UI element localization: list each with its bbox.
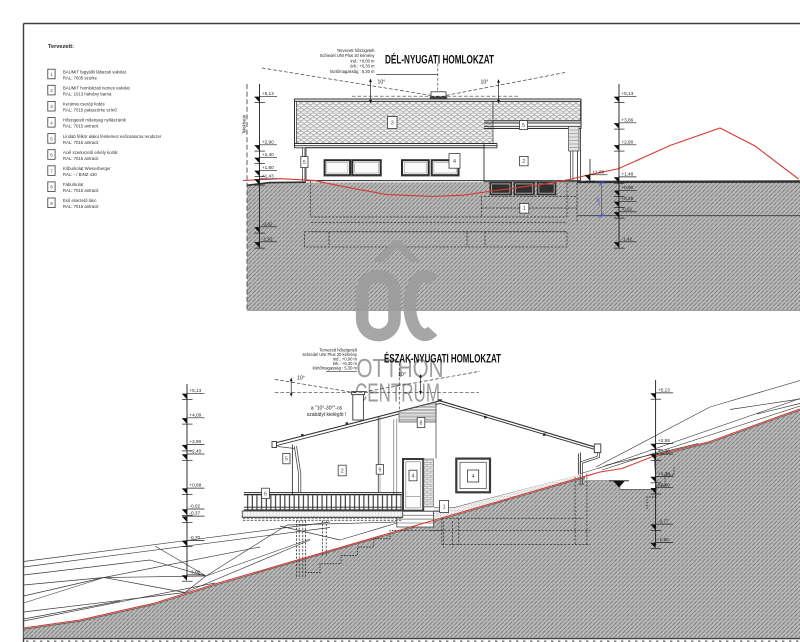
svg-text:4: 4 bbox=[453, 159, 456, 165]
svg-text:1: 1 bbox=[523, 206, 526, 212]
svg-text:RAL: 7015 palaszürke színű: RAL: 7015 palaszürke színű bbox=[63, 108, 117, 113]
svg-text:4: 4 bbox=[50, 120, 53, 126]
svg-text:+0,90: +0,90 bbox=[658, 482, 670, 487]
svg-text:2: 2 bbox=[522, 159, 525, 165]
svg-text:+1,80: +1,80 bbox=[262, 165, 274, 170]
svg-text:+1,48: +1,48 bbox=[621, 172, 633, 177]
svg-text:RAL: 1013 halvány barna: RAL: 1013 halvány barna bbox=[63, 92, 112, 97]
svg-text:Kerámia cserép fedés: Kerámia cserép fedés bbox=[63, 102, 105, 107]
svg-text:DÉL-NYUGATI HOMLOKZAT: DÉL-NYUGATI HOMLOKZAT bbox=[385, 54, 494, 67]
svg-text:9: 9 bbox=[50, 201, 53, 207]
svg-text:+0,28: +0,28 bbox=[621, 196, 633, 201]
svg-text:5: 5 bbox=[50, 136, 53, 142]
svg-text:6: 6 bbox=[50, 153, 53, 159]
svg-text:+2,90: +2,90 bbox=[189, 439, 201, 444]
svg-text:+3,86: +3,86 bbox=[621, 117, 633, 122]
svg-text:8: 8 bbox=[420, 420, 423, 426]
svg-text:+1,43: +1,43 bbox=[262, 173, 274, 178]
svg-text:+2,40: +2,40 bbox=[658, 449, 670, 454]
svg-text:+5,13: +5,13 bbox=[262, 91, 274, 96]
svg-text:9: 9 bbox=[378, 467, 381, 473]
svg-text:+2,59: +2,59 bbox=[658, 438, 670, 443]
svg-text:+0,90: +0,90 bbox=[621, 185, 633, 190]
svg-text:Acél szerkezetű erkély korlát: Acél szerkezetű erkély korlát bbox=[63, 150, 118, 155]
svg-text:3: 3 bbox=[391, 120, 394, 126]
svg-text:10°: 10° bbox=[297, 376, 305, 382]
svg-text:RAL: 7005 szürke: RAL: 7005 szürke bbox=[63, 75, 98, 80]
svg-text:-0,37: -0,37 bbox=[189, 511, 200, 516]
svg-text:10°: 10° bbox=[378, 79, 386, 85]
svg-text:RAL: 7015 antracit: RAL: 7015 antracit bbox=[63, 124, 99, 129]
svg-text:+2,90: +2,90 bbox=[262, 139, 274, 144]
svg-text:-1,42: -1,42 bbox=[621, 236, 632, 241]
svg-text:szabályt kielégíti !: szabályt kielégíti ! bbox=[307, 412, 346, 418]
svg-text:3: 3 bbox=[50, 104, 53, 110]
svg-text:+2,90: +2,90 bbox=[621, 139, 633, 144]
svg-text:kürtőmagasság : 5,30 m: kürtőmagasság : 5,30 m bbox=[313, 365, 358, 370]
svg-text:RAL: - / BINZ 430: RAL: - / BINZ 430 bbox=[63, 172, 98, 177]
svg-text:Telekhatár: Telekhatár bbox=[242, 114, 247, 134]
svg-text:10°: 10° bbox=[398, 372, 406, 378]
svg-text:Hőszigetelt műanyag nyílászáró: Hőszigetelt műanyag nyílászárók bbox=[63, 118, 127, 123]
svg-text:BAUMIT fagyálló lábazati vakol: BAUMIT fagyálló lábazati vakolat bbox=[63, 69, 127, 74]
svg-text:+5,13: +5,13 bbox=[621, 91, 633, 96]
svg-text:+5,13: +5,13 bbox=[658, 388, 670, 393]
svg-text:Eső elvezető lánc: Eső elvezető lánc bbox=[63, 198, 98, 203]
svg-text:+0,88: +0,88 bbox=[189, 483, 201, 488]
svg-text:-0,02: -0,02 bbox=[189, 504, 200, 509]
svg-text:-0,02: -0,02 bbox=[621, 206, 632, 211]
svg-text:5: 5 bbox=[522, 123, 525, 129]
svg-text:1,50: 1,50 bbox=[596, 197, 601, 206]
svg-text:4: 4 bbox=[472, 474, 475, 480]
svg-text:6: 6 bbox=[264, 491, 267, 497]
svg-text:+1,39: +1,39 bbox=[658, 471, 670, 476]
svg-text:-1,82: -1,82 bbox=[658, 537, 669, 542]
svg-text:+5,13: +5,13 bbox=[189, 388, 201, 393]
svg-text:érk.: +6,30 m: érk.: +6,30 m bbox=[350, 64, 375, 69]
svg-text:8: 8 bbox=[50, 185, 53, 191]
svg-text:1: 1 bbox=[443, 504, 446, 510]
svg-text:+2,40: +2,40 bbox=[262, 152, 274, 157]
svg-text:2: 2 bbox=[341, 468, 344, 474]
svg-text:Tervezett:: Tervezett: bbox=[48, 44, 74, 50]
svg-text:RAL: 7015 antracit: RAL: 7015 antracit bbox=[63, 140, 99, 145]
svg-text:a "10°-30°"-os: a "10°-30°"-os bbox=[311, 406, 343, 412]
svg-text:Faburkolat: Faburkolat bbox=[63, 182, 84, 187]
svg-text:5: 5 bbox=[303, 160, 306, 166]
svg-text:-3,00: -3,00 bbox=[189, 570, 200, 575]
svg-text:Lindab félkör alakú fémlemez e: Lindab félkör alakú fémlemez esőcsatorna… bbox=[63, 134, 162, 139]
svg-text:+4,09: +4,09 bbox=[189, 412, 201, 417]
svg-text:ÉSZAK-NYUGATI HOMLOKZAT: ÉSZAK-NYUGATI HOMLOKZAT bbox=[384, 353, 501, 366]
svg-text:+1,80: +1,80 bbox=[592, 169, 604, 174]
svg-text:5: 5 bbox=[285, 457, 288, 463]
svg-text:-0,82: -0,82 bbox=[262, 221, 273, 226]
svg-text:kürtőmagasság : 5,30 m: kürtőmagasság : 5,30 m bbox=[330, 69, 375, 74]
svg-text:7: 7 bbox=[50, 169, 53, 175]
svg-text:1: 1 bbox=[50, 72, 53, 78]
svg-text:RAL: 7015 antracit: RAL: 7015 antracit bbox=[63, 204, 99, 209]
svg-text:RAL: 7015 antracit: RAL: 7015 antracit bbox=[63, 156, 99, 161]
svg-text:BAUMIT homlokzati nemes vakola: BAUMIT homlokzati nemes vakolat bbox=[63, 86, 131, 91]
svg-text:RAL: 7015 antracit: RAL: 7015 antracit bbox=[63, 188, 99, 193]
svg-text:2: 2 bbox=[50, 88, 53, 94]
svg-text:-0,77: -0,77 bbox=[658, 519, 669, 524]
svg-text:10°: 10° bbox=[481, 79, 489, 85]
svg-text:4: 4 bbox=[412, 473, 415, 479]
svg-text:-1,92: -1,92 bbox=[262, 236, 273, 241]
svg-text:Kőburkolat Wienerberger: Kőburkolat Wienerberger bbox=[63, 166, 111, 171]
svg-text:-0,70: -0,70 bbox=[189, 535, 200, 540]
svg-text:+2,40: +2,40 bbox=[189, 449, 201, 454]
